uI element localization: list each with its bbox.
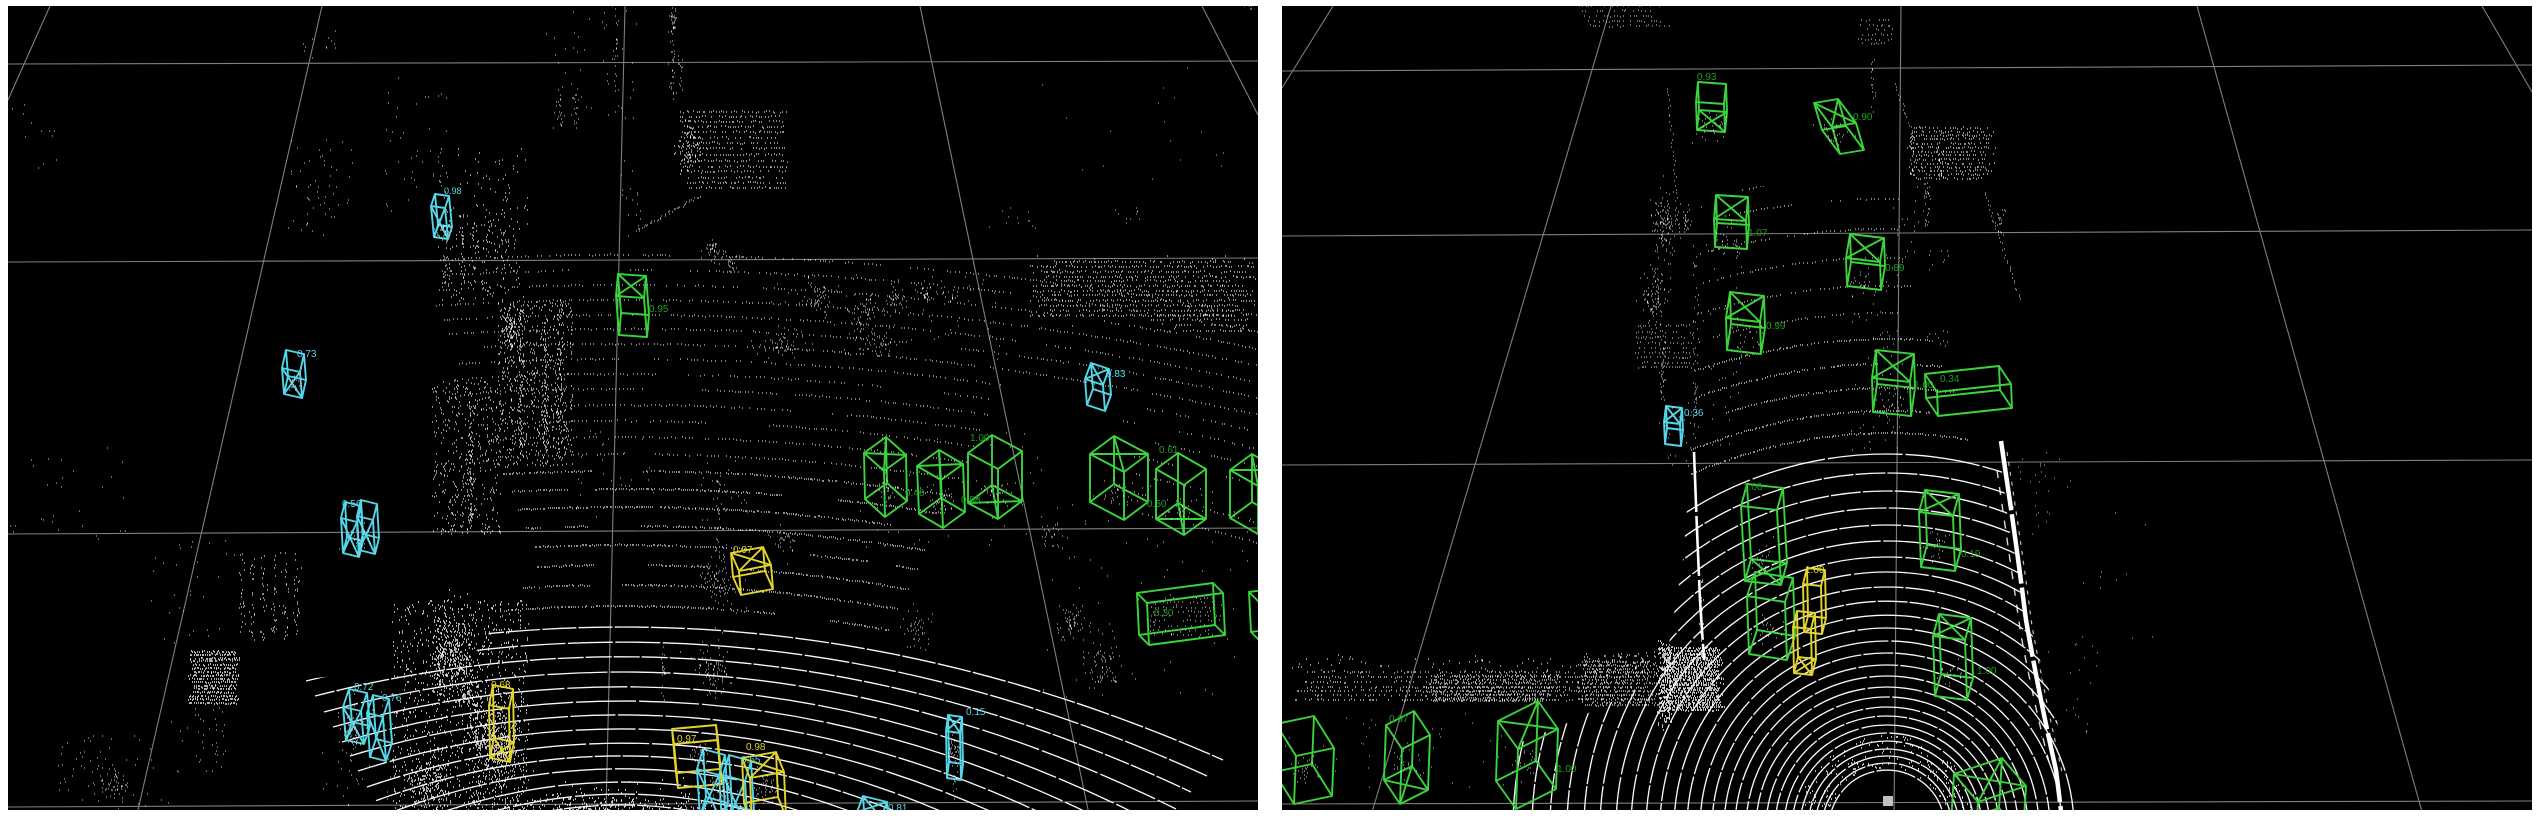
svg-text:0.34: 0.34: [1940, 374, 1960, 385]
svg-text:1.00: 1.00: [1557, 764, 1577, 775]
svg-text:0.99: 0.99: [1766, 321, 1786, 332]
svg-text:0.97: 0.97: [677, 734, 697, 745]
svg-text:0.30: 0.30: [1154, 608, 1174, 619]
svg-text:0.90: 0.90: [1853, 112, 1873, 123]
svg-text:0.83: 0.83: [1106, 369, 1126, 380]
svg-text:0.98: 0.98: [444, 186, 462, 196]
svg-text:1.00: 1.00: [1977, 666, 1997, 677]
svg-text:0.15: 0.15: [966, 707, 986, 718]
svg-text:0.56: 0.56: [342, 499, 362, 510]
svg-text:0.98: 0.98: [961, 495, 981, 506]
svg-text:0.95: 0.95: [649, 304, 669, 315]
svg-text:0.68: 0.68: [491, 680, 511, 691]
svg-text:0.19: 0.19: [1961, 549, 1981, 560]
svg-text:0.50: 0.50: [1147, 499, 1167, 510]
svg-text:0.46: 0.46: [905, 488, 925, 499]
svg-text:0.72: 0.72: [354, 682, 374, 693]
svg-text:0.93: 0.93: [1697, 72, 1717, 83]
svg-text:0.97: 0.97: [1389, 714, 1409, 725]
svg-text:1.00: 1.00: [1743, 482, 1763, 493]
svg-text:1.00: 1.00: [1805, 565, 1825, 576]
svg-text:0.73: 0.73: [297, 349, 317, 360]
svg-text:1.07: 1.07: [1748, 228, 1768, 239]
svg-text:1.00: 1.00: [970, 433, 990, 444]
svg-text:0.76: 0.76: [382, 693, 402, 704]
svg-text:0.89: 0.89: [1885, 263, 1905, 274]
svg-text:0.36: 0.36: [1684, 408, 1704, 419]
svg-text:0.97: 0.97: [733, 545, 753, 556]
svg-text:0.55: 0.55: [741, 755, 761, 766]
svg-text:0.98: 0.98: [746, 742, 766, 753]
